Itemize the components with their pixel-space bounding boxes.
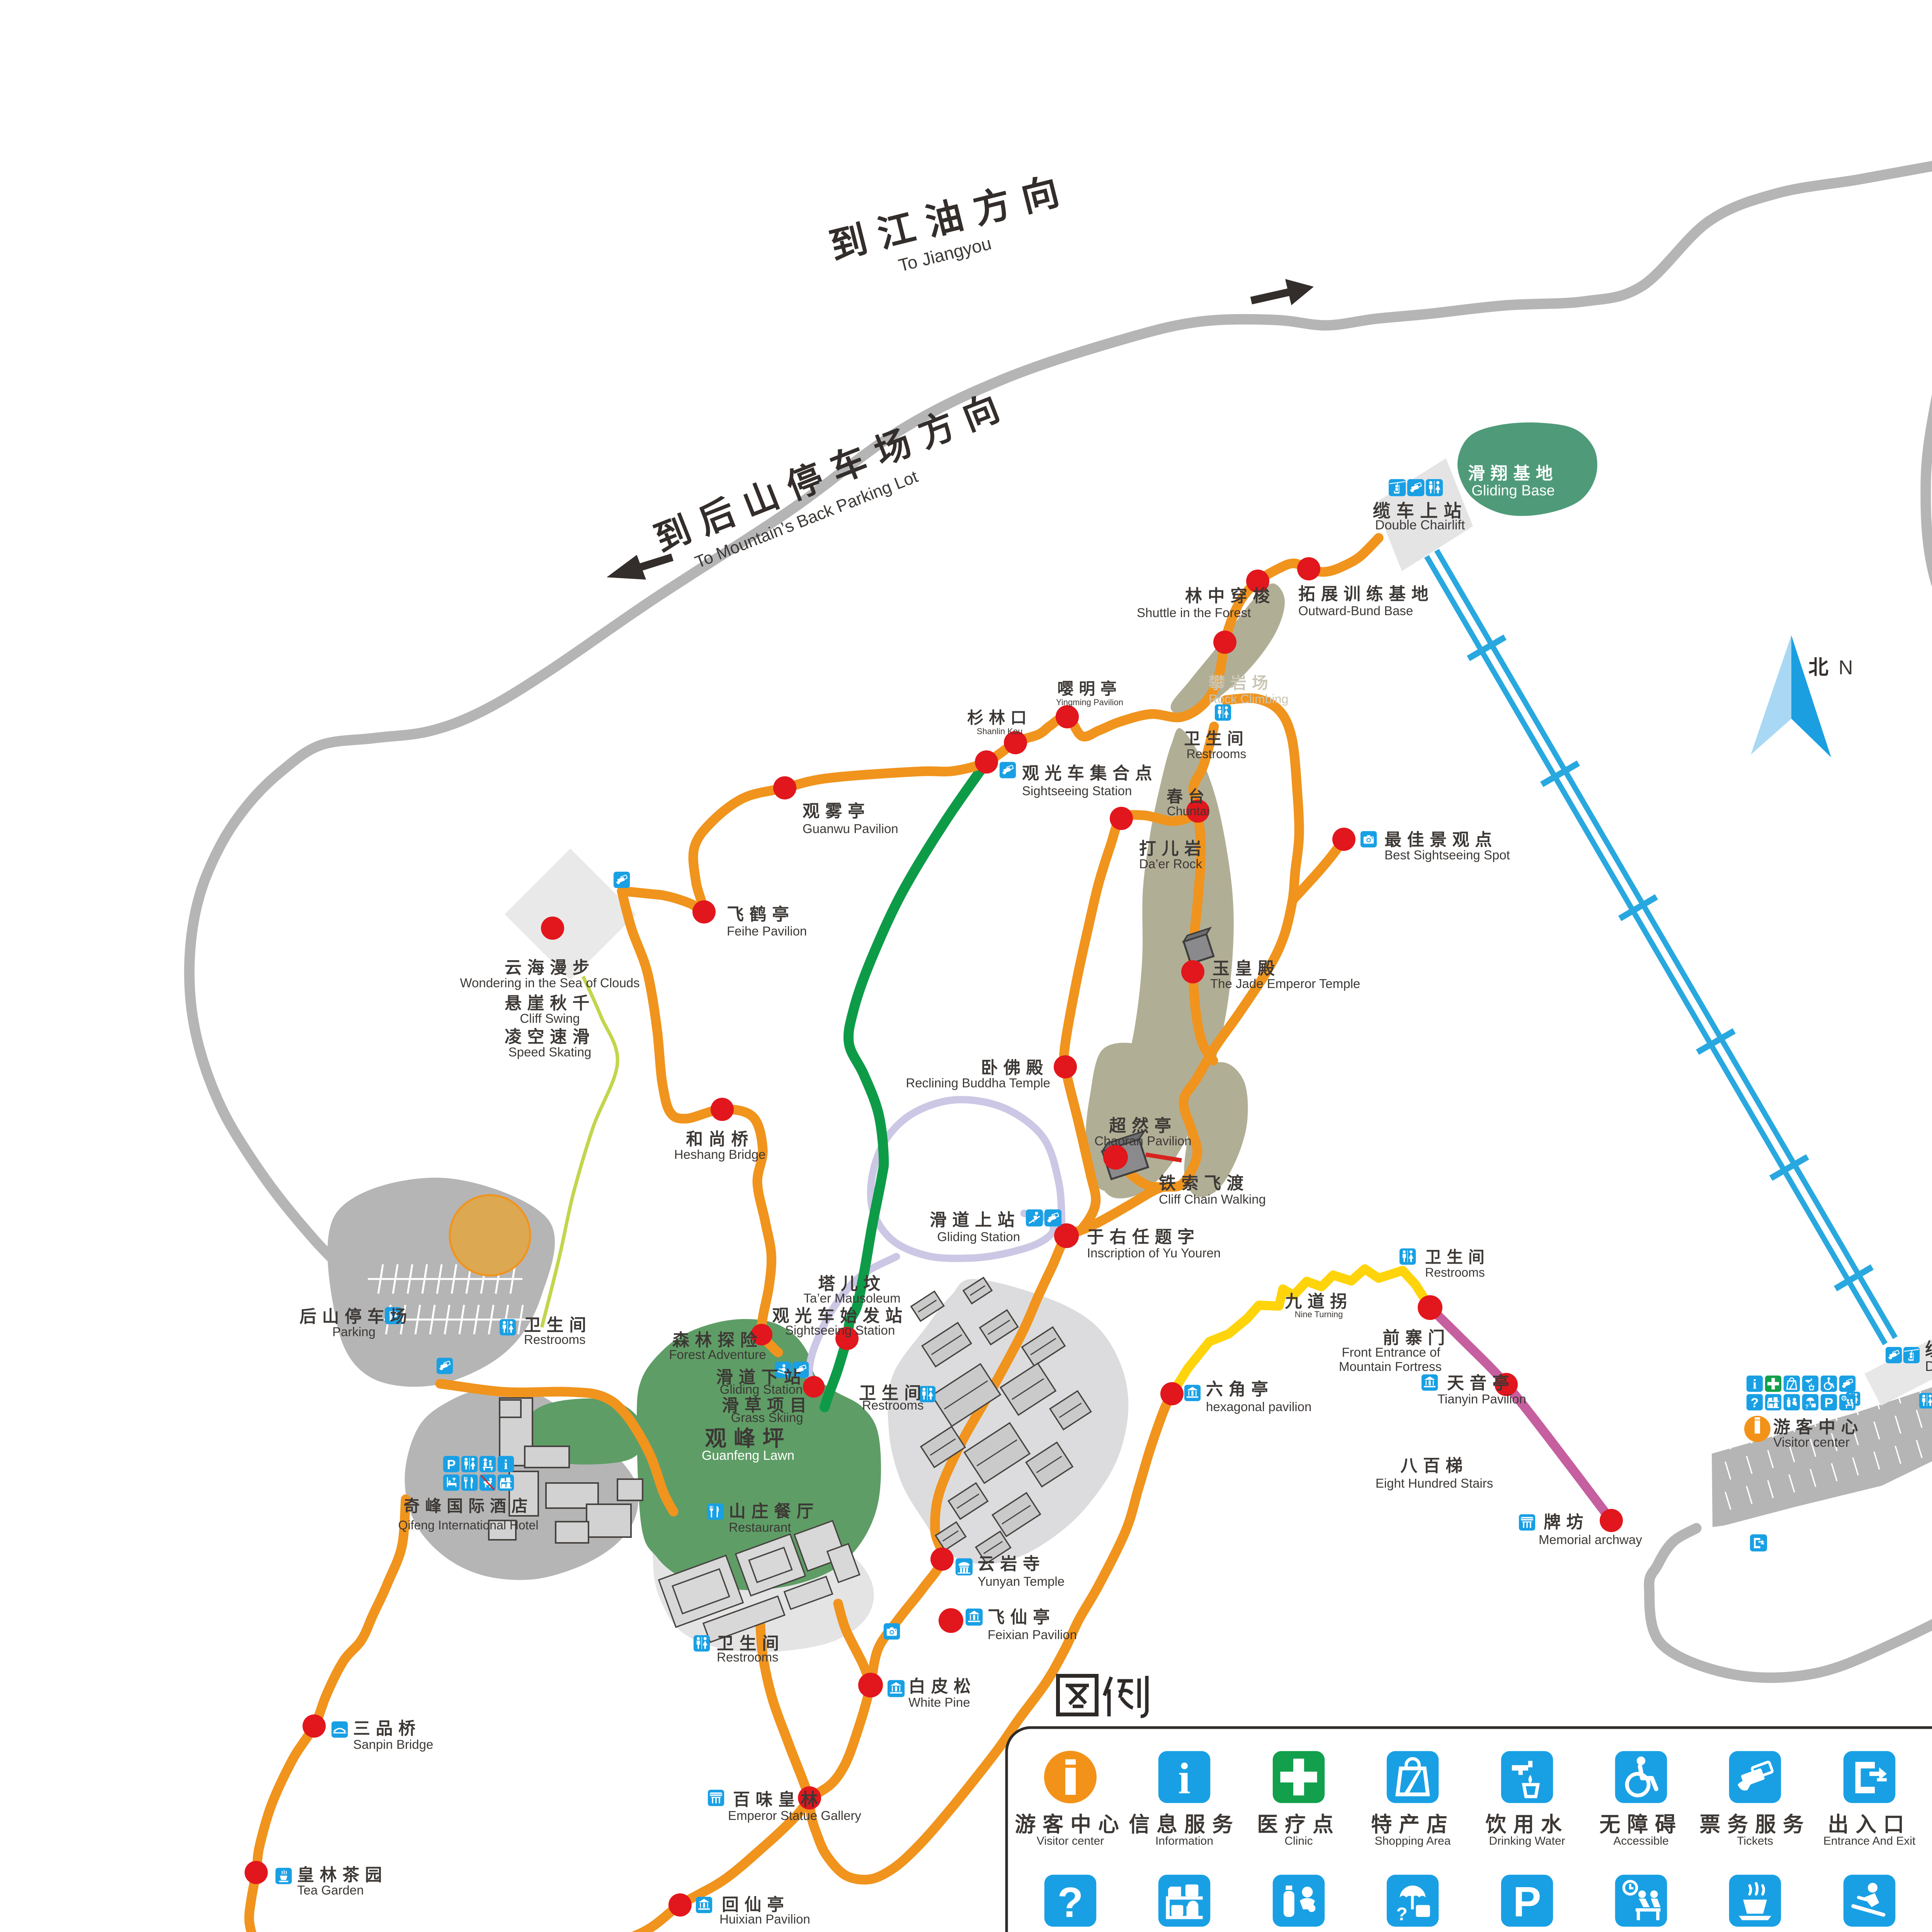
svg-text:Shuttle in the Forest: Shuttle in the Forest (1137, 605, 1251, 620)
svg-text:Yingming Pavilion: Yingming Pavilion (1056, 697, 1123, 707)
svg-text:Chaoran Pavilion: Chaoran Pavilion (1094, 1134, 1191, 1148)
svg-text:出入口: 出入口 (1828, 1813, 1911, 1836)
svg-text:Accessible: Accessible (1613, 1835, 1668, 1847)
svg-text:Sightseeing Station: Sightseeing Station (785, 1323, 895, 1337)
svg-text:打儿岩: 打儿岩 (1139, 839, 1207, 858)
svg-text:Qifeng International Hotel: Qifeng International Hotel (398, 1518, 539, 1532)
svg-text:Front Entrance of: Front Entrance of (1342, 1345, 1441, 1359)
svg-text:和尚桥: 和尚桥 (686, 1130, 754, 1149)
svg-text:塔儿坟: 塔儿坟 (818, 1274, 886, 1293)
svg-text:云岩寺: 云岩寺 (978, 1554, 1046, 1573)
svg-text:Chuntai: Chuntai (1167, 804, 1209, 818)
svg-text:信息服务: 信息服务 (1129, 1813, 1240, 1836)
svg-text:回仙亭: 回仙亭 (722, 1895, 790, 1914)
svg-text:Feixian Pavilion: Feixian Pavilion (988, 1628, 1077, 1642)
svg-text:超然亭: 超然亭 (1109, 1116, 1177, 1135)
svg-text:攀岩场: 攀岩场 (1209, 674, 1274, 692)
svg-text:Forest Adventure: Forest Adventure (669, 1347, 766, 1362)
svg-text:Speed Skating: Speed Skating (509, 1045, 592, 1059)
svg-text:医疗点: 医疗点 (1257, 1813, 1340, 1836)
svg-text:Gliding Station: Gliding Station (937, 1230, 1020, 1244)
svg-text:Cliff Swing: Cliff Swing (520, 1011, 580, 1026)
svg-text:牌坊: 牌坊 (1544, 1513, 1589, 1532)
svg-text:Inscription of Yu Youren: Inscription of Yu Youren (1087, 1246, 1221, 1260)
svg-text:游客中心: 游客中心 (1015, 1813, 1126, 1836)
svg-text:Outward-Bund Base: Outward-Bund Base (1298, 604, 1413, 618)
svg-text:Tianyin Pavilion: Tianyin Pavilion (1437, 1392, 1526, 1406)
svg-text:滑道上站: 滑道上站 (930, 1211, 1020, 1230)
svg-text:Restrooms: Restrooms (1425, 1265, 1485, 1279)
svg-text:Emperor Statue Gallery: Emperor Statue Gallery (728, 1808, 861, 1823)
svg-text:Heshang Bridge: Heshang Bridge (674, 1147, 766, 1162)
svg-text:Restrooms: Restrooms (524, 1332, 586, 1347)
svg-text:特产店: 特产店 (1371, 1813, 1454, 1836)
svg-text:White Pine: White Pine (908, 1695, 970, 1709)
svg-text:飞鹤亭: 飞鹤亭 (727, 905, 795, 924)
svg-text:六角亭: 六角亭 (1206, 1380, 1274, 1399)
svg-text:天音亭: 天音亭 (1447, 1374, 1515, 1393)
svg-text:春台: 春台 (1167, 787, 1210, 806)
svg-text:Yunyan Temple: Yunyan Temple (978, 1574, 1065, 1588)
svg-text:林中穿梭: 林中穿梭 (1185, 587, 1276, 605)
svg-text:Cliff Chain Walking: Cliff Chain Walking (1159, 1192, 1266, 1206)
svg-text:Double Chairlift: Double Chairlift (1375, 518, 1465, 532)
svg-text:Information: Information (1155, 1835, 1213, 1847)
svg-text:卫生间: 卫生间 (1184, 730, 1249, 748)
svg-text:玉皇殿: 玉皇殿 (1213, 959, 1281, 978)
svg-text:Feihe Pavilion: Feihe Pavilion (727, 924, 807, 938)
svg-text:Shopping Area: Shopping Area (1375, 1835, 1451, 1847)
svg-text:最佳景观点: 最佳景观点 (1384, 830, 1498, 849)
svg-text:Gliding Station: Gliding Station (720, 1382, 803, 1396)
svg-text:Grass Skiing: Grass Skiing (731, 1410, 803, 1425)
svg-text:观光车始发站: 观光车始发站 (772, 1306, 908, 1325)
svg-text:缆车下站: 缆车下站 (1925, 1339, 1932, 1359)
svg-text:Double Chairlift: Double Chairlift (1925, 1358, 1932, 1374)
svg-text:Rock Climbing: Rock Climbing (1209, 692, 1288, 706)
svg-text:Reclining Buddha Temple: Reclining Buddha Temple (906, 1076, 1050, 1090)
svg-text:嘤明亭: 嘤明亭 (1057, 680, 1122, 698)
svg-text:Guanfeng Lawn: Guanfeng Lawn (702, 1448, 794, 1463)
svg-text:观光车集合点: 观光车集合点 (1022, 764, 1158, 783)
svg-text:Nine Turning: Nine Turning (1295, 1310, 1343, 1319)
svg-text:Da’er Rock: Da’er Rock (1139, 857, 1202, 871)
svg-text:卫生间: 卫生间 (1425, 1248, 1490, 1266)
svg-text:百味皇林: 百味皇林 (733, 1790, 823, 1809)
svg-text:云海漫步: 云海漫步 (505, 958, 595, 977)
svg-text:Restaurant: Restaurant (729, 1520, 791, 1534)
svg-text:Visitor center: Visitor center (1773, 1435, 1850, 1450)
svg-text:N: N (1838, 656, 1853, 679)
svg-text:Guanwu Pavilion: Guanwu Pavilion (803, 821, 898, 836)
svg-text:铁索飞渡: 铁索飞渡 (1159, 1174, 1249, 1193)
svg-text:杉林口: 杉林口 (967, 709, 1032, 727)
svg-text:hexagonal pavilion: hexagonal pavilion (1206, 1400, 1311, 1414)
svg-text:八百梯: 八百梯 (1400, 1456, 1468, 1475)
svg-text:Wondering in the Sea of Clouds: Wondering in the Sea of Clouds (460, 976, 639, 990)
svg-text:拓展训练基地: 拓展训练基地 (1298, 585, 1434, 604)
svg-text:Clinic: Clinic (1284, 1835, 1313, 1847)
svg-text:饮用水: 饮用水 (1485, 1813, 1568, 1836)
svg-text:Restrooms: Restrooms (862, 1398, 924, 1412)
svg-text:Memorial archway: Memorial archway (1539, 1532, 1642, 1547)
svg-text:Parking: Parking (332, 1325, 376, 1339)
svg-text:Restrooms: Restrooms (1187, 747, 1247, 761)
svg-text:游客中心: 游客中心 (1773, 1418, 1864, 1437)
svg-text:卫生间: 卫生间 (524, 1316, 592, 1335)
svg-text:Tea Garden: Tea Garden (297, 1883, 364, 1897)
svg-text:Gliding Base: Gliding Base (1471, 483, 1554, 499)
svg-text:票务服务: 票务服务 (1699, 1813, 1810, 1836)
svg-text:后山停车场: 后山停车场 (299, 1307, 413, 1326)
svg-text:无障碍: 无障碍 (1599, 1813, 1682, 1836)
svg-text:Eight Hundred Stairs: Eight Hundred Stairs (1376, 1476, 1493, 1490)
svg-text:观峰坪: 观峰坪 (705, 1426, 791, 1451)
svg-text:Drinking Water: Drinking Water (1489, 1835, 1565, 1847)
svg-text:北: 北 (1808, 656, 1835, 679)
svg-text:Shanlin Kou: Shanlin Kou (977, 726, 1023, 736)
svg-text:森林探险: 森林探险 (672, 1331, 763, 1350)
svg-text:悬崖秋千: 悬崖秋千 (505, 994, 595, 1013)
svg-text:Huixian Pavilion: Huixian Pavilion (719, 1912, 810, 1926)
svg-text:Entrance And Exit: Entrance And Exit (1823, 1835, 1916, 1847)
svg-text:Ta’er Mausoleum: Ta’er Mausoleum (803, 1291, 900, 1305)
svg-text:Tickets: Tickets (1737, 1835, 1773, 1847)
svg-text:凌空速滑: 凌空速滑 (505, 1027, 595, 1046)
svg-text:前寨门: 前寨门 (1383, 1328, 1451, 1347)
svg-text:Mountain Fortress: Mountain Fortress (1339, 1359, 1442, 1374)
svg-text:Sightseeing Station: Sightseeing Station (1022, 784, 1132, 798)
svg-text:于右任题字: 于右任题字 (1087, 1228, 1200, 1247)
svg-text:Visitor center: Visitor center (1037, 1835, 1104, 1847)
svg-text:观雾亭: 观雾亭 (803, 802, 871, 821)
svg-text:卧佛殿: 卧佛殿 (981, 1058, 1049, 1077)
svg-text:九道拐: 九道拐 (1285, 1292, 1353, 1311)
svg-text:The Jade Emperor Temple: The Jade Emperor Temple (1210, 976, 1360, 991)
svg-text:奇峰国际酒店: 奇峰国际酒店 (403, 1497, 533, 1515)
svg-text:白皮松: 白皮松 (908, 1677, 976, 1696)
svg-text:飞仙亭: 飞仙亭 (988, 1608, 1056, 1627)
svg-text:三品桥: 三品桥 (353, 1719, 421, 1738)
svg-text:Restrooms: Restrooms (717, 1650, 779, 1664)
svg-text:Sanpin Bridge: Sanpin Bridge (353, 1737, 433, 1752)
svg-text:滑翔基地: 滑翔基地 (1468, 464, 1558, 483)
svg-text:皇林茶园: 皇林茶园 (297, 1866, 388, 1884)
svg-text:Best Sightseeing Spot: Best Sightseeing Spot (1384, 848, 1510, 862)
svg-text:山庄餐厅: 山庄餐厅 (729, 1502, 819, 1521)
